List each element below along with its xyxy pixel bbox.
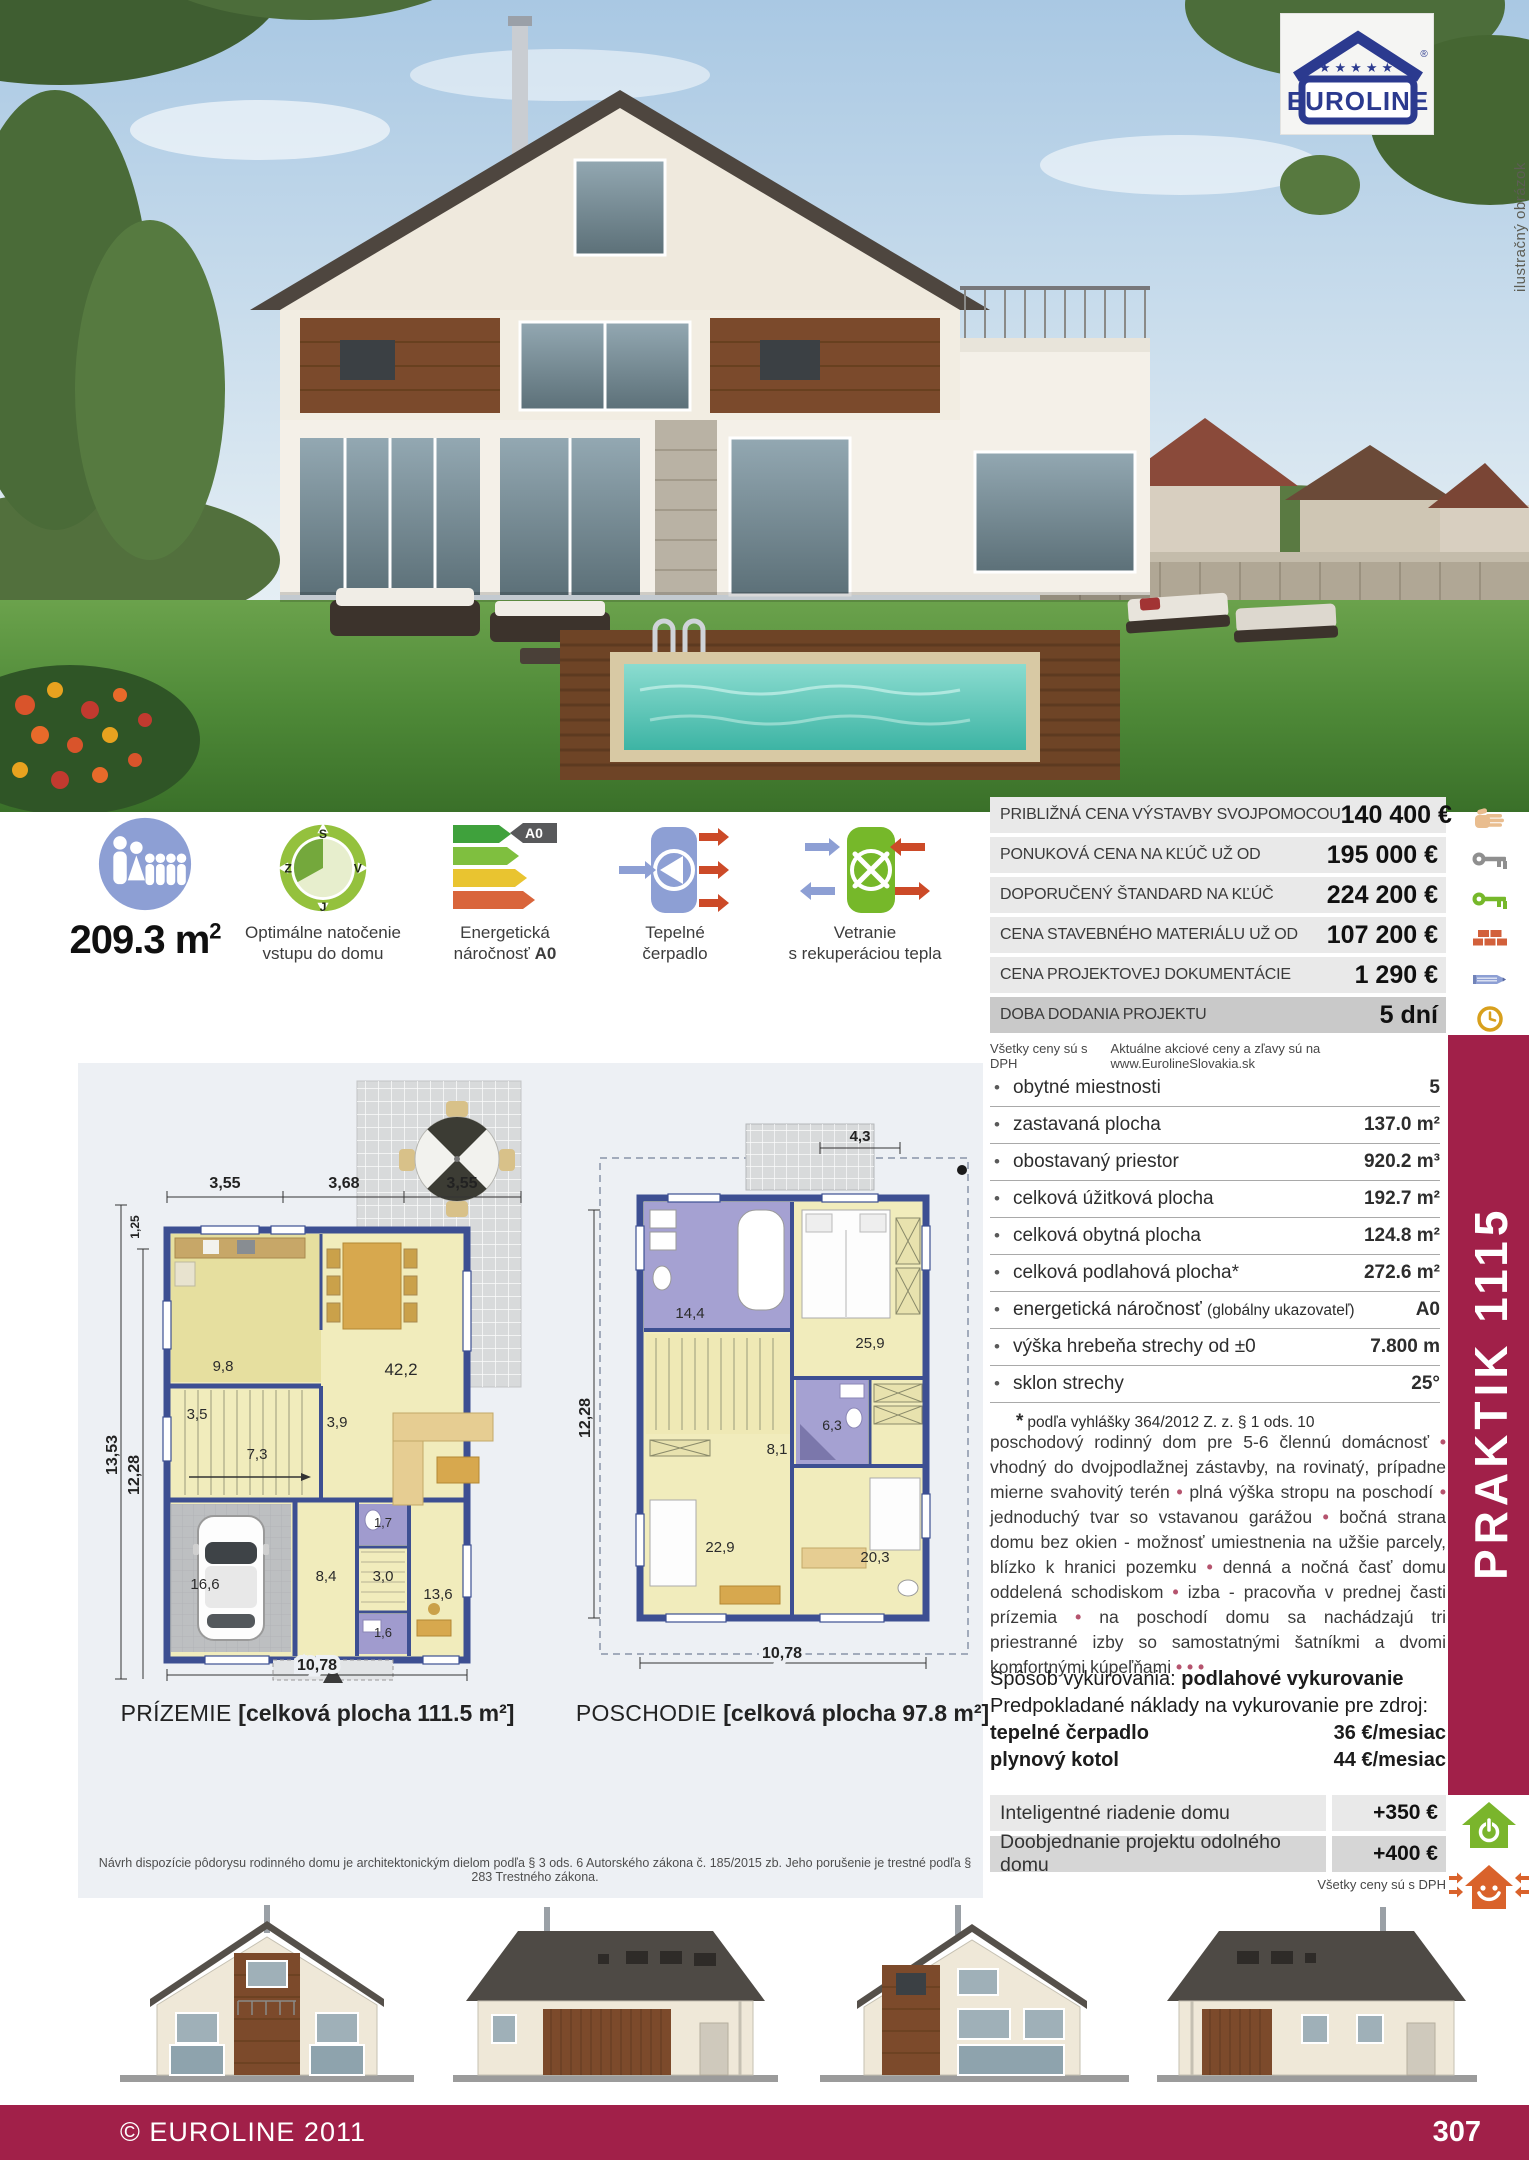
price-row-label: DOPORUČENÝ ŠTANDARD NA KĽÚČ (1000, 886, 1273, 904)
room-corridor: 3,9 (327, 1414, 348, 1431)
page-number: 307 (1433, 2116, 1481, 2149)
family-icon (52, 812, 238, 912)
room-bathroom: 14,4 (675, 1305, 704, 1322)
compass-east: V (354, 862, 363, 876)
compass-south: J (320, 900, 327, 914)
price-row-value: 5 dní (1380, 1001, 1438, 1030)
spec-row: výška hrebeňa strechy od ±0 7.800 m (990, 1329, 1440, 1366)
registered-mark: ® (1420, 49, 1428, 60)
copyright-disclaimer: Návrh dispozície pôdorysu rodinného domu… (90, 1856, 980, 1884)
dim-left-outer: 13,53 (105, 1435, 121, 1475)
dim-top-1: 3,55 (209, 1175, 240, 1192)
spec-row: celková úžitková plocha 192.7 m² (990, 1181, 1440, 1218)
website-note: Aktuálne akciové ceny a zľavy sú na www.… (1111, 1041, 1446, 1071)
spec-row: obytné miestnosti 5 (990, 1070, 1440, 1107)
usable-area-value: 209.3 m2 (52, 918, 238, 963)
price-row: PONUKOVÁ CENA NA KĽÚČ UŽ OD 195 000 € (990, 837, 1446, 873)
dim-top: 4,3 (850, 1128, 871, 1145)
model-name: PRAKTIK 1115 (1464, 1060, 1518, 1580)
hand-icon (1456, 799, 1524, 839)
floorplan-upper: 4,3 (570, 1118, 995, 1703)
room-study: 13,6 (423, 1586, 452, 1603)
room-hall: 8,1 (767, 1441, 788, 1458)
dim-left-inner: 12,28 (126, 1455, 143, 1495)
house-photo: ★★★★★ ® EUROLINE ilustračný obrázok (0, 0, 1529, 812)
spec-row: obostavaný priestor 920.2 m³ (990, 1144, 1440, 1181)
compass-west: Z (284, 862, 292, 876)
price-notes: Všetky ceny sú s DPH Aktuálne akciové ce… (990, 1041, 1446, 1071)
room-hall: 3,5 (187, 1406, 208, 1423)
house-description: poschodový rodinný dom pre 5-6 člennú do… (990, 1430, 1446, 1680)
heating-costs-intro: Predpokladané náklady na vykurovanie pre… (990, 1693, 1446, 1720)
room-kitchen: 9,8 (213, 1358, 234, 1375)
heatpump-label: Tepelné čerpadlo (605, 923, 745, 964)
upper-floor-caption: POSCHODIE [celková plocha 97.8 m²] (570, 1700, 995, 1727)
heat-pump-icon (605, 822, 745, 915)
spec-row-energy: energetická náročnosť (globálny ukazovat… (990, 1292, 1440, 1329)
price-row-label: PONUKOVÁ CENA NA KĽÚČ UŽ OD (1000, 846, 1260, 864)
dim-bottom: 10,78 (762, 1645, 802, 1662)
bricks-icon (1456, 919, 1524, 959)
heating-cost-row: tepelné čerpadlo36 €/mesiac (990, 1720, 1446, 1747)
price-row-icons (1456, 799, 1524, 1039)
price-row: PRIBLIŽNÁ CENA VÝSTAVBY SVOJPOMOCOU 140 … (990, 797, 1446, 833)
room-tech: 1,6 (374, 1625, 392, 1640)
price-row-label: CENA PROJEKTOVEJ DOKUMENTÁCIE (1000, 966, 1291, 984)
orientation-label: Optimálne natočenie vstupu do domu (238, 923, 408, 964)
feature-orientation: S V J Z Optimálne natočenie vstupu do do… (238, 815, 408, 964)
price-row-value: 140 400 € (1341, 801, 1452, 830)
energy-label: Energetická náročnosť A0 (435, 923, 575, 964)
spec-row: zastavaná plocha 137.0 m² (990, 1107, 1440, 1144)
elevation-drawing-4 (1152, 1905, 1482, 2087)
key-icon (1456, 839, 1524, 879)
elevation-drawing-2 (448, 1905, 783, 2087)
room-pantry: 3,0 (373, 1568, 394, 1585)
price-row-value: 107 200 € (1327, 921, 1438, 950)
price-row: CENA STAVEBNÉHO MATERIÁLU UŽ OD 107 200 … (990, 917, 1446, 953)
vat-note: Všetky ceny sú s DPH (990, 1877, 1446, 1892)
extra-options: Inteligentné riadenie domu +350 € Doobje… (990, 1795, 1446, 1892)
price-table: PRIBLIŽNÁ CENA VÝSTAVBY SVOJPOMOCOU 140 … (990, 797, 1446, 1037)
ventilation-label: Vetranie s rekuperáciou tepla (775, 923, 955, 964)
page-footer: © EUROLINE 2011 307 (0, 2105, 1529, 2160)
model-sidebar: PRAKTIK 1115 (1448, 1035, 1529, 1795)
compass-north: S (319, 827, 327, 841)
room-1: 22,9 (705, 1539, 734, 1556)
option-row: Doobjednanie projektu odolného domu +400… (990, 1836, 1446, 1872)
room-stairs: 7,3 (247, 1446, 268, 1463)
room-wc: 1,7 (374, 1515, 392, 1530)
pencil-icon (1456, 959, 1524, 999)
price-row-value: 195 000 € (1327, 841, 1438, 870)
room-bedroom: 25,9 (855, 1335, 884, 1352)
price-row-delivery: DOBA DODANIA PROJEKTU 5 dní (990, 997, 1446, 1033)
price-row-value: 1 290 € (1355, 961, 1438, 990)
dim-top-3: 3,55 (446, 1175, 477, 1192)
price-row-label: PRIBLIŽNÁ CENA VÝSTAVBY SVOJPOMOCOU (1000, 806, 1341, 824)
heating-cost-row: plynový kotol44 €/mesiac (990, 1747, 1446, 1774)
spec-row: celková obytná plocha 124.8 m² (990, 1218, 1440, 1255)
price-row-label: DOBA DODANIA PROJEKTU (1000, 1006, 1207, 1024)
elevation-drawing-1 (112, 1905, 422, 2087)
room-garage: 16,6 (190, 1576, 219, 1593)
spec-list: obytné miestnosti 5 zastavaná plocha 137… (990, 1070, 1440, 1433)
room-hallway: 8,4 (316, 1568, 337, 1585)
compass-icon: S V J Z (238, 815, 408, 915)
energy-rating-icon: A0 (435, 815, 575, 915)
dim-left-top: 1,25 (128, 1215, 142, 1239)
spec-row: sklon strechy 25° (990, 1366, 1440, 1403)
vat-note: Všetky ceny sú s DPH (990, 1041, 1111, 1071)
smart-home-icon (1448, 1798, 1529, 1857)
feature-energy: A0 Energetická náročnosť A0 (435, 815, 575, 964)
option-icons (1448, 1798, 1529, 1922)
heating-info: Spôsob vykurovania: podlahové vykurovani… (990, 1666, 1446, 1774)
copyright: © EUROLINE 2011 (120, 2117, 366, 2148)
clock-icon (1456, 999, 1524, 1039)
room-2: 20,3 (860, 1549, 889, 1566)
heating-method: Spôsob vykurovania: podlahové vykurovani… (990, 1666, 1446, 1693)
logo-stars: ★★★★★ (1319, 60, 1397, 75)
pool (560, 621, 1120, 780)
dim-top-2: 3,68 (328, 1175, 359, 1192)
feature-ventilation: Vetranie s rekuperáciou tepla (775, 822, 955, 964)
room-living: 42,2 (384, 1360, 417, 1379)
catalog-page: ★★★★★ ® EUROLINE ilustračný obrázok (0, 0, 1529, 2160)
logo-wordmark: EUROLINE (1287, 86, 1429, 116)
euroline-logo: ★★★★★ ® EUROLINE (1281, 14, 1433, 134)
dim-bottom: 10,78 (297, 1657, 337, 1674)
feature-area: 209.3 m2 (52, 812, 238, 963)
price-row: DOPORUČENÝ ŠTANDARD NA KĽÚČ 224 200 € (990, 877, 1446, 913)
floorplan-ground: 3,55 3,68 3,55 13,53 12,28 1,25 10,78 9,… (105, 1075, 530, 1687)
option-row: Inteligentné riadenie domu +350 € (990, 1795, 1446, 1831)
elevation-drawing-3 (812, 1905, 1137, 2087)
price-row-value: 224 200 € (1327, 881, 1438, 910)
ground-floor-caption: PRÍZEMIE [celková plocha 111.5 m²] (105, 1700, 530, 1727)
illustrative-image-note: ilustračný obrázok (1512, 162, 1529, 292)
price-row: CENA PROJEKTOVEJ DOKUMENTÁCIE 1 290 € (990, 957, 1446, 993)
spec-row: celková podlahová plocha* 272.6 m² (990, 1255, 1440, 1292)
ventilation-icon (775, 822, 955, 915)
energy-grade-badge: A0 (525, 825, 543, 841)
price-row-label: CENA STAVEBNÉHO MATERIÁLU UŽ OD (1000, 926, 1298, 944)
dim-left: 12,28 (577, 1398, 594, 1438)
room-bathroom2: 6,3 (822, 1417, 842, 1433)
feature-heatpump: Tepelné čerpadlo (605, 822, 745, 964)
key-icon-green (1456, 879, 1524, 919)
